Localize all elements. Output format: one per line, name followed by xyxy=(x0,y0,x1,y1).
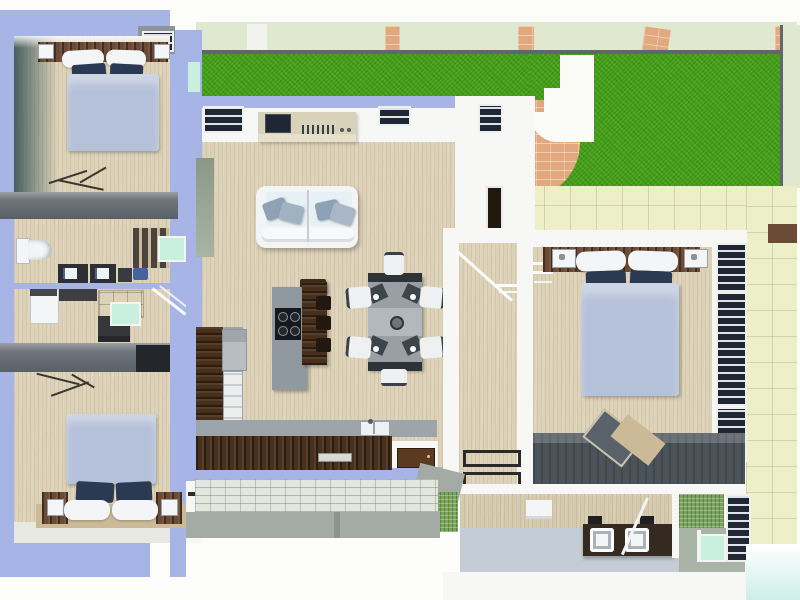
dining-plate-1 xyxy=(373,294,379,300)
dining-center-bowl xyxy=(390,316,404,330)
dining-chair-left-2 xyxy=(345,336,372,359)
bedroom2-lamp-right xyxy=(161,499,178,516)
dining-chair-top xyxy=(384,252,404,275)
utility-cabinet-2-label xyxy=(95,268,109,279)
walkway xyxy=(186,512,440,538)
tv-console-vents xyxy=(302,125,336,134)
floor-plan-render xyxy=(0,0,800,600)
island-burner-3 xyxy=(278,326,288,336)
master-window-2 xyxy=(716,292,747,406)
section-wall-slab-1 xyxy=(0,192,178,219)
section-wall-slab-2-dark xyxy=(136,345,170,372)
master-lamp-right-dot xyxy=(691,254,697,260)
kitchen-sink xyxy=(360,421,390,436)
island-burner-2 xyxy=(290,312,300,322)
shower-mosaic-wall xyxy=(679,494,724,531)
bar-stool-2 xyxy=(316,316,331,330)
paver-strip xyxy=(195,479,438,512)
living-window-right xyxy=(378,106,411,126)
tv-console-knob-2 xyxy=(347,128,351,132)
shower-mint-panel xyxy=(699,534,726,562)
bedroom1-lamp-right xyxy=(154,44,170,59)
bath-sink-1 xyxy=(590,528,614,552)
dining-bench-bottom xyxy=(381,369,407,386)
toilet-bowl xyxy=(28,240,52,260)
bar-stool-1 xyxy=(316,296,331,310)
laundry-mirror-panel xyxy=(110,302,141,326)
dining-plate-2 xyxy=(410,294,416,300)
bedroom2-lamp-left xyxy=(47,499,64,516)
bedroom2-pillow-white-1 xyxy=(64,500,110,520)
garden-right-wall xyxy=(780,25,800,188)
kitchen-walnut-label xyxy=(318,453,352,462)
dining-plate-3 xyxy=(373,346,379,352)
island-burner-4 xyxy=(290,326,300,336)
bath-divider-wall xyxy=(672,494,679,558)
closet-rail-short-2 xyxy=(499,291,517,293)
bedroom2-duvet xyxy=(66,414,156,484)
bar-stool-3 xyxy=(316,338,331,352)
service-door-knob xyxy=(427,455,430,458)
utility-cabinet-1-label xyxy=(63,268,77,279)
bedroom2-pillow-white-2 xyxy=(112,500,158,520)
dining-plate-4 xyxy=(410,346,416,352)
master-window-1 xyxy=(716,243,747,292)
dining-chair-right-2 xyxy=(419,336,446,359)
laundry-counter xyxy=(57,289,97,301)
master-lamp-left-dot xyxy=(559,254,565,260)
pergola-corner-walnut xyxy=(768,224,797,243)
kitchen-faucet-dot xyxy=(368,419,373,424)
utility-box xyxy=(118,268,132,282)
kitchen-sink-divider xyxy=(373,421,375,434)
living-side-door xyxy=(196,158,214,257)
dining-chair-right-1 xyxy=(419,286,446,309)
dining-chair-left-1 xyxy=(345,286,372,309)
closet-rail-short-1 xyxy=(495,284,517,287)
kitchen-walnut-bottom xyxy=(196,436,392,470)
garden-white-step-1 xyxy=(560,55,594,91)
kitchen-counter-bottom xyxy=(196,420,437,437)
entry-window xyxy=(478,104,503,133)
pool-corner xyxy=(746,544,800,600)
master-pillow-white-1 xyxy=(576,250,627,272)
walkway-seam xyxy=(334,512,340,538)
washing-machine-panel xyxy=(30,289,57,296)
left-wing-left-wall xyxy=(0,10,14,545)
closet-threshold-1 xyxy=(463,450,521,467)
patio-tiles xyxy=(518,186,780,232)
living-window-left xyxy=(203,106,244,133)
living-left-wall-window xyxy=(188,62,200,92)
bath-shelf-ac xyxy=(526,500,552,519)
master-pillow-white-2 xyxy=(628,250,679,272)
master-duvet xyxy=(581,283,679,396)
bedroom1-lamp-left xyxy=(38,44,54,59)
tv-console-knob-1 xyxy=(340,128,344,132)
kitchen-fridge xyxy=(222,329,247,371)
island-burner-1 xyxy=(278,312,288,322)
utility-mirror-panel xyxy=(158,236,186,262)
tv-console-shelf xyxy=(258,134,356,142)
bedroom1-duvet xyxy=(67,74,159,151)
utility-blue-bin xyxy=(133,268,148,280)
left-wing-bottom-wall xyxy=(0,543,150,577)
tv-screen xyxy=(265,114,291,133)
master-wardrobe-rail-3 xyxy=(534,281,552,283)
sofa-center-seam xyxy=(307,190,309,242)
